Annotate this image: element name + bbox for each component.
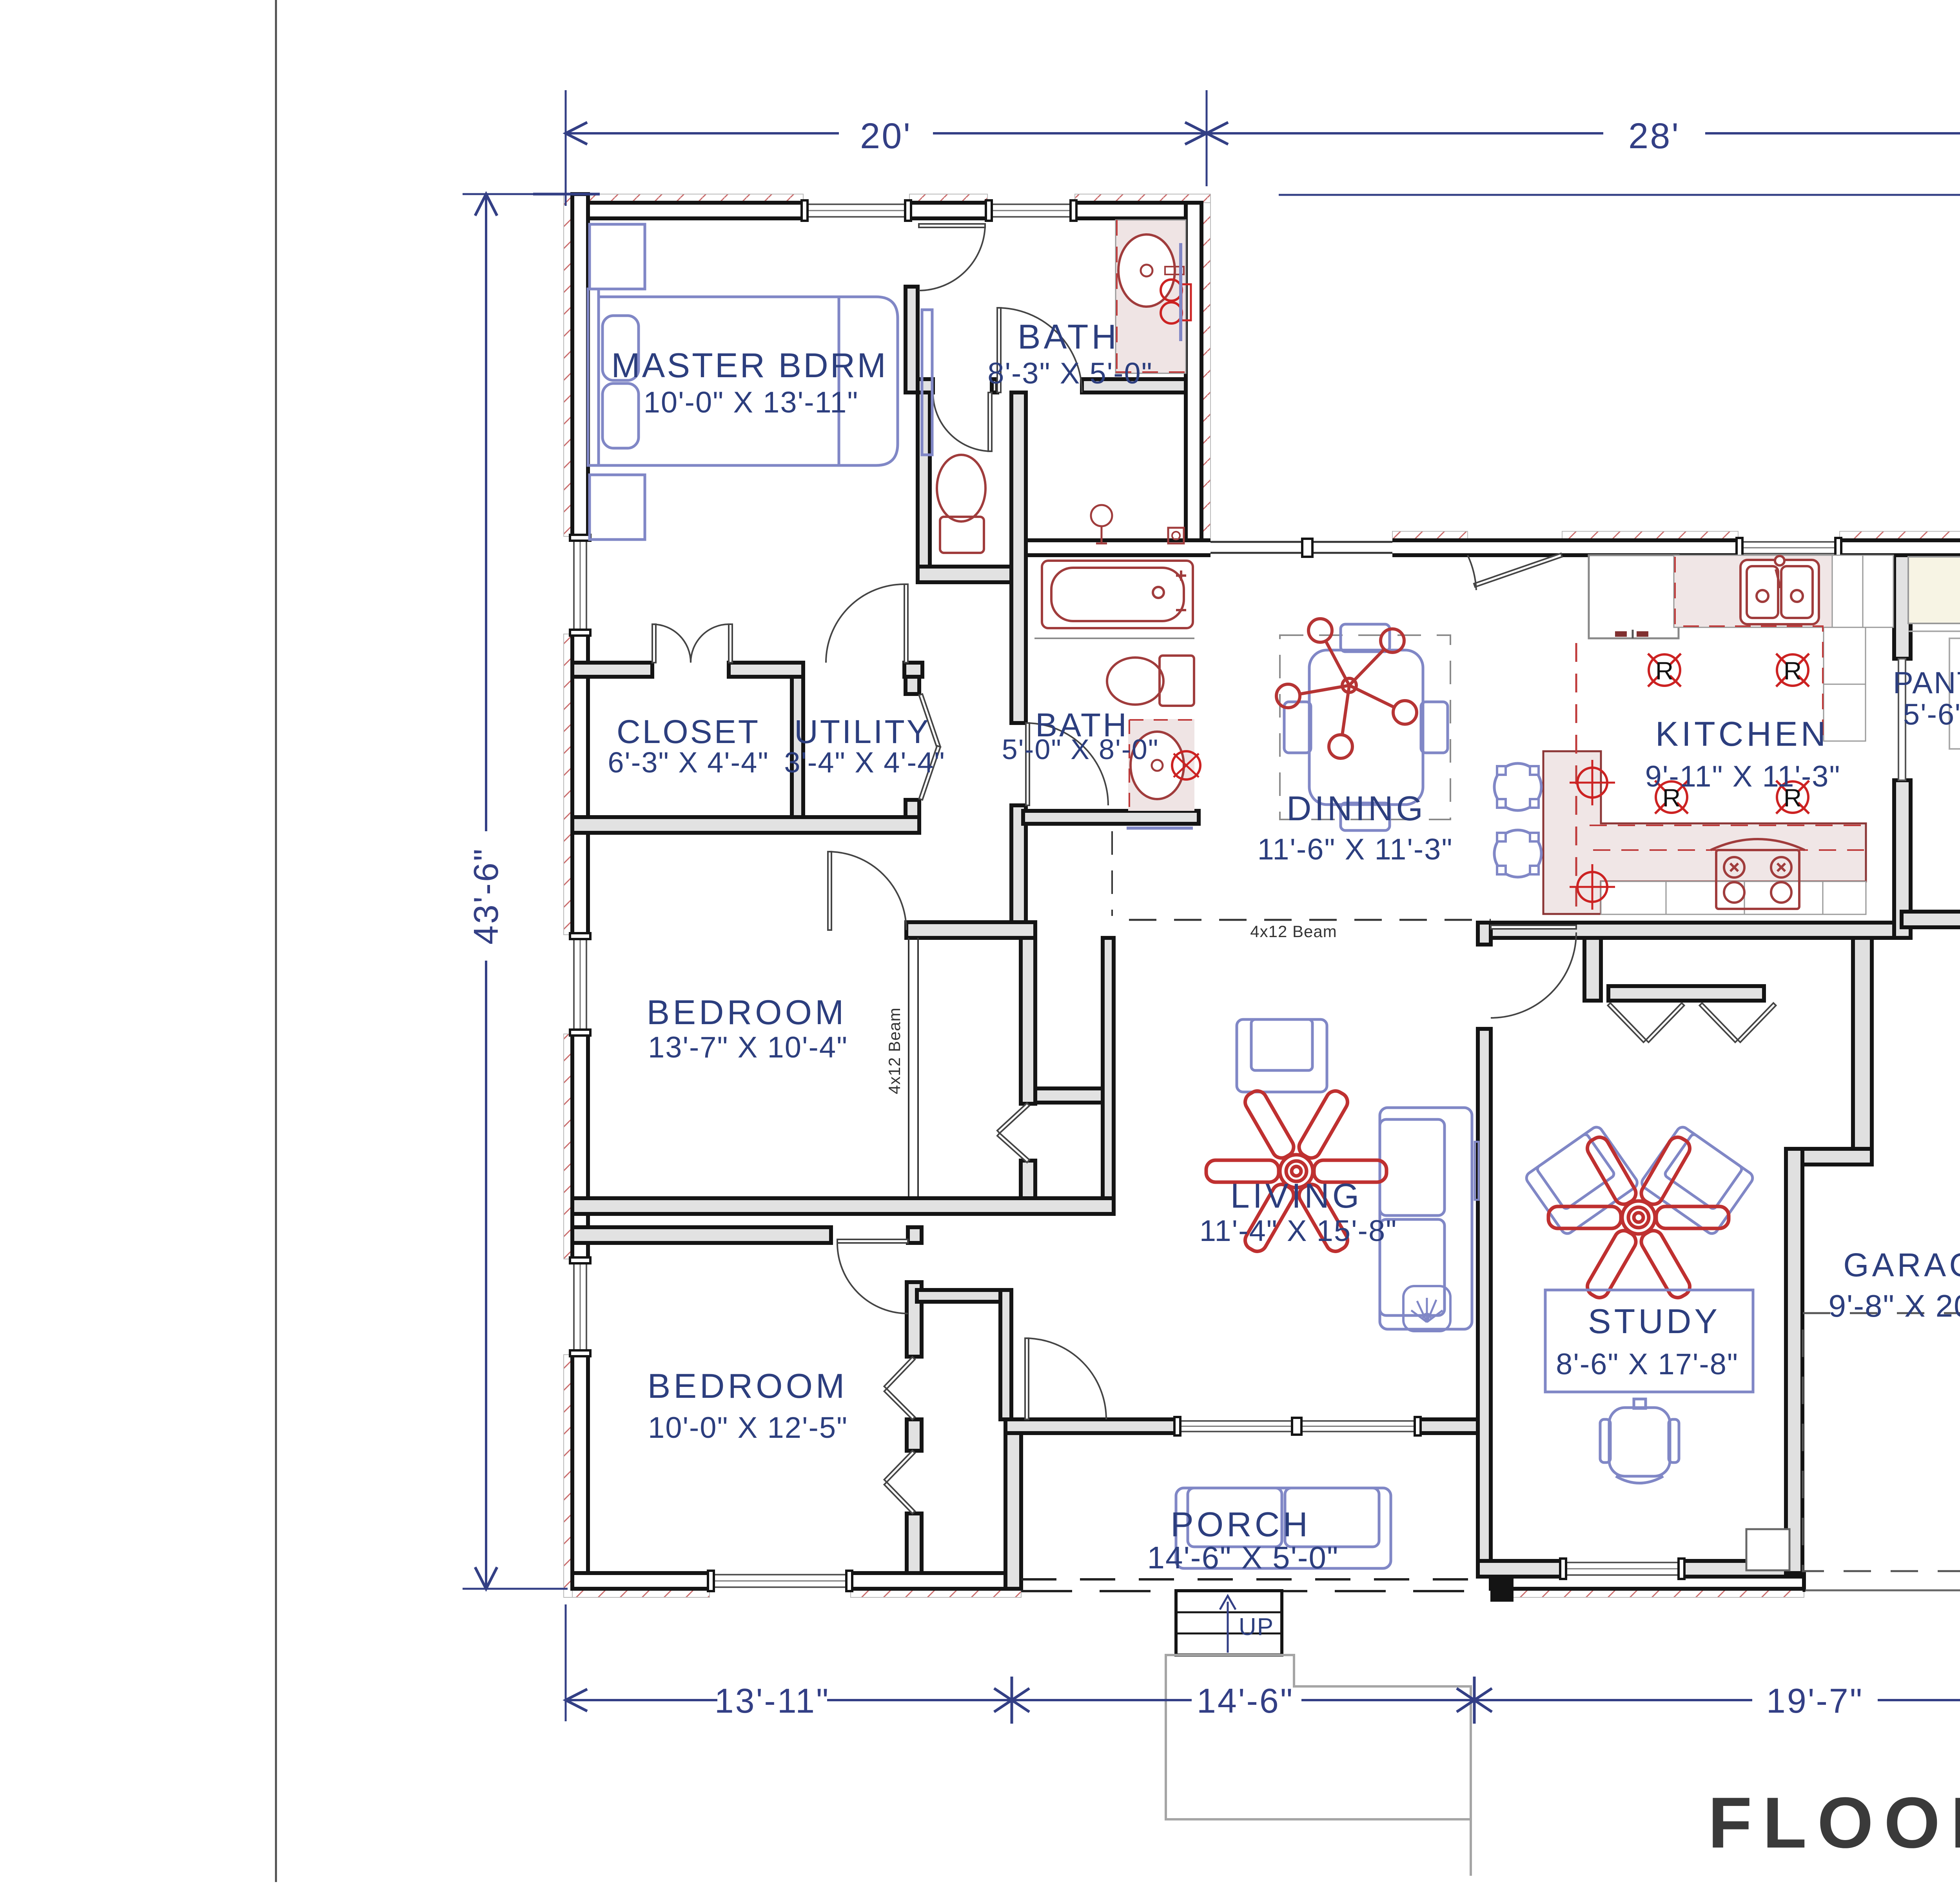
svg-text:BEDROOM: BEDROOM — [647, 993, 847, 1032]
svg-text:11'-6" X 11'-3": 11'-6" X 11'-3" — [1258, 833, 1453, 866]
svg-text:43'-6": 43'-6" — [466, 847, 505, 945]
svg-text:10'-0" X 12'-5": 10'-0" X 12'-5" — [648, 1411, 848, 1444]
svg-text:8'-6" X 17'-8": 8'-6" X 17'-8" — [1556, 1348, 1739, 1381]
svg-text:UTILITY: UTILITY — [794, 713, 931, 750]
svg-text:3'-4" X 4'-4": 3'-4" X 4'-4" — [784, 746, 945, 779]
svg-text:BEDROOM: BEDROOM — [648, 1366, 848, 1405]
svg-text:PORCH: PORCH — [1171, 1505, 1311, 1544]
svg-text:CLOSET: CLOSET — [617, 713, 760, 750]
svg-text:20': 20' — [860, 116, 912, 156]
svg-text:11'-4" X 15'-8": 11'-4" X 15'-8" — [1200, 1214, 1397, 1248]
svg-text:PANT/LAUND: PANT/LAUND — [1893, 665, 1960, 700]
svg-text:UP: UP — [1239, 1613, 1274, 1641]
svg-text:FLOOR PLAN: FLOOR PLAN — [1708, 1782, 1960, 1863]
svg-text:GARAGE: GARAGE — [1843, 1246, 1960, 1283]
svg-text:BATH: BATH — [1018, 317, 1120, 356]
svg-text:KITCHEN: KITCHEN — [1655, 714, 1829, 753]
svg-text:13'-11": 13'-11" — [715, 1681, 830, 1720]
svg-text:MASTER BDRM: MASTER BDRM — [611, 346, 887, 385]
svg-text:6'-3" X 4'-4": 6'-3" X 4'-4" — [608, 746, 769, 779]
svg-text:14'-6" X 5'-0": 14'-6" X 5'-0" — [1147, 1540, 1339, 1575]
svg-text:10'-0" X 13'-11": 10'-0" X 13'-11" — [644, 386, 859, 419]
svg-text:14'-6": 14'-6" — [1197, 1681, 1294, 1720]
svg-text:STUDY: STUDY — [1588, 1302, 1720, 1341]
svg-text:19'-7": 19'-7" — [1766, 1681, 1864, 1720]
svg-text:DINING: DINING — [1287, 789, 1426, 828]
svg-text:4x12 Beam: 4x12 Beam — [1250, 922, 1337, 941]
svg-text:R: R — [1784, 657, 1802, 685]
svg-text:13'-7" X 10'-4": 13'-7" X 10'-4" — [648, 1031, 848, 1064]
svg-text:9'-8" X 20'-0": 9'-8" X 20'-0" — [1829, 1288, 1960, 1323]
svg-text:LIVING: LIVING — [1230, 1176, 1363, 1215]
svg-text:5'-0" X 8'-0": 5'-0" X 8'-0" — [1002, 734, 1159, 765]
svg-text:4x12 Beam: 4x12 Beam — [885, 1007, 904, 1094]
svg-text:8'-3" X 5'-0": 8'-3" X 5'-0" — [987, 357, 1153, 390]
svg-text:5'-6" X 11'-3": 5'-6" X 11'-3" — [1903, 698, 1960, 731]
svg-text:28': 28' — [1628, 116, 1680, 156]
svg-text:9'-11" X 11'-3": 9'-11" X 11'-3" — [1645, 760, 1841, 793]
svg-text:R: R — [1655, 657, 1673, 685]
